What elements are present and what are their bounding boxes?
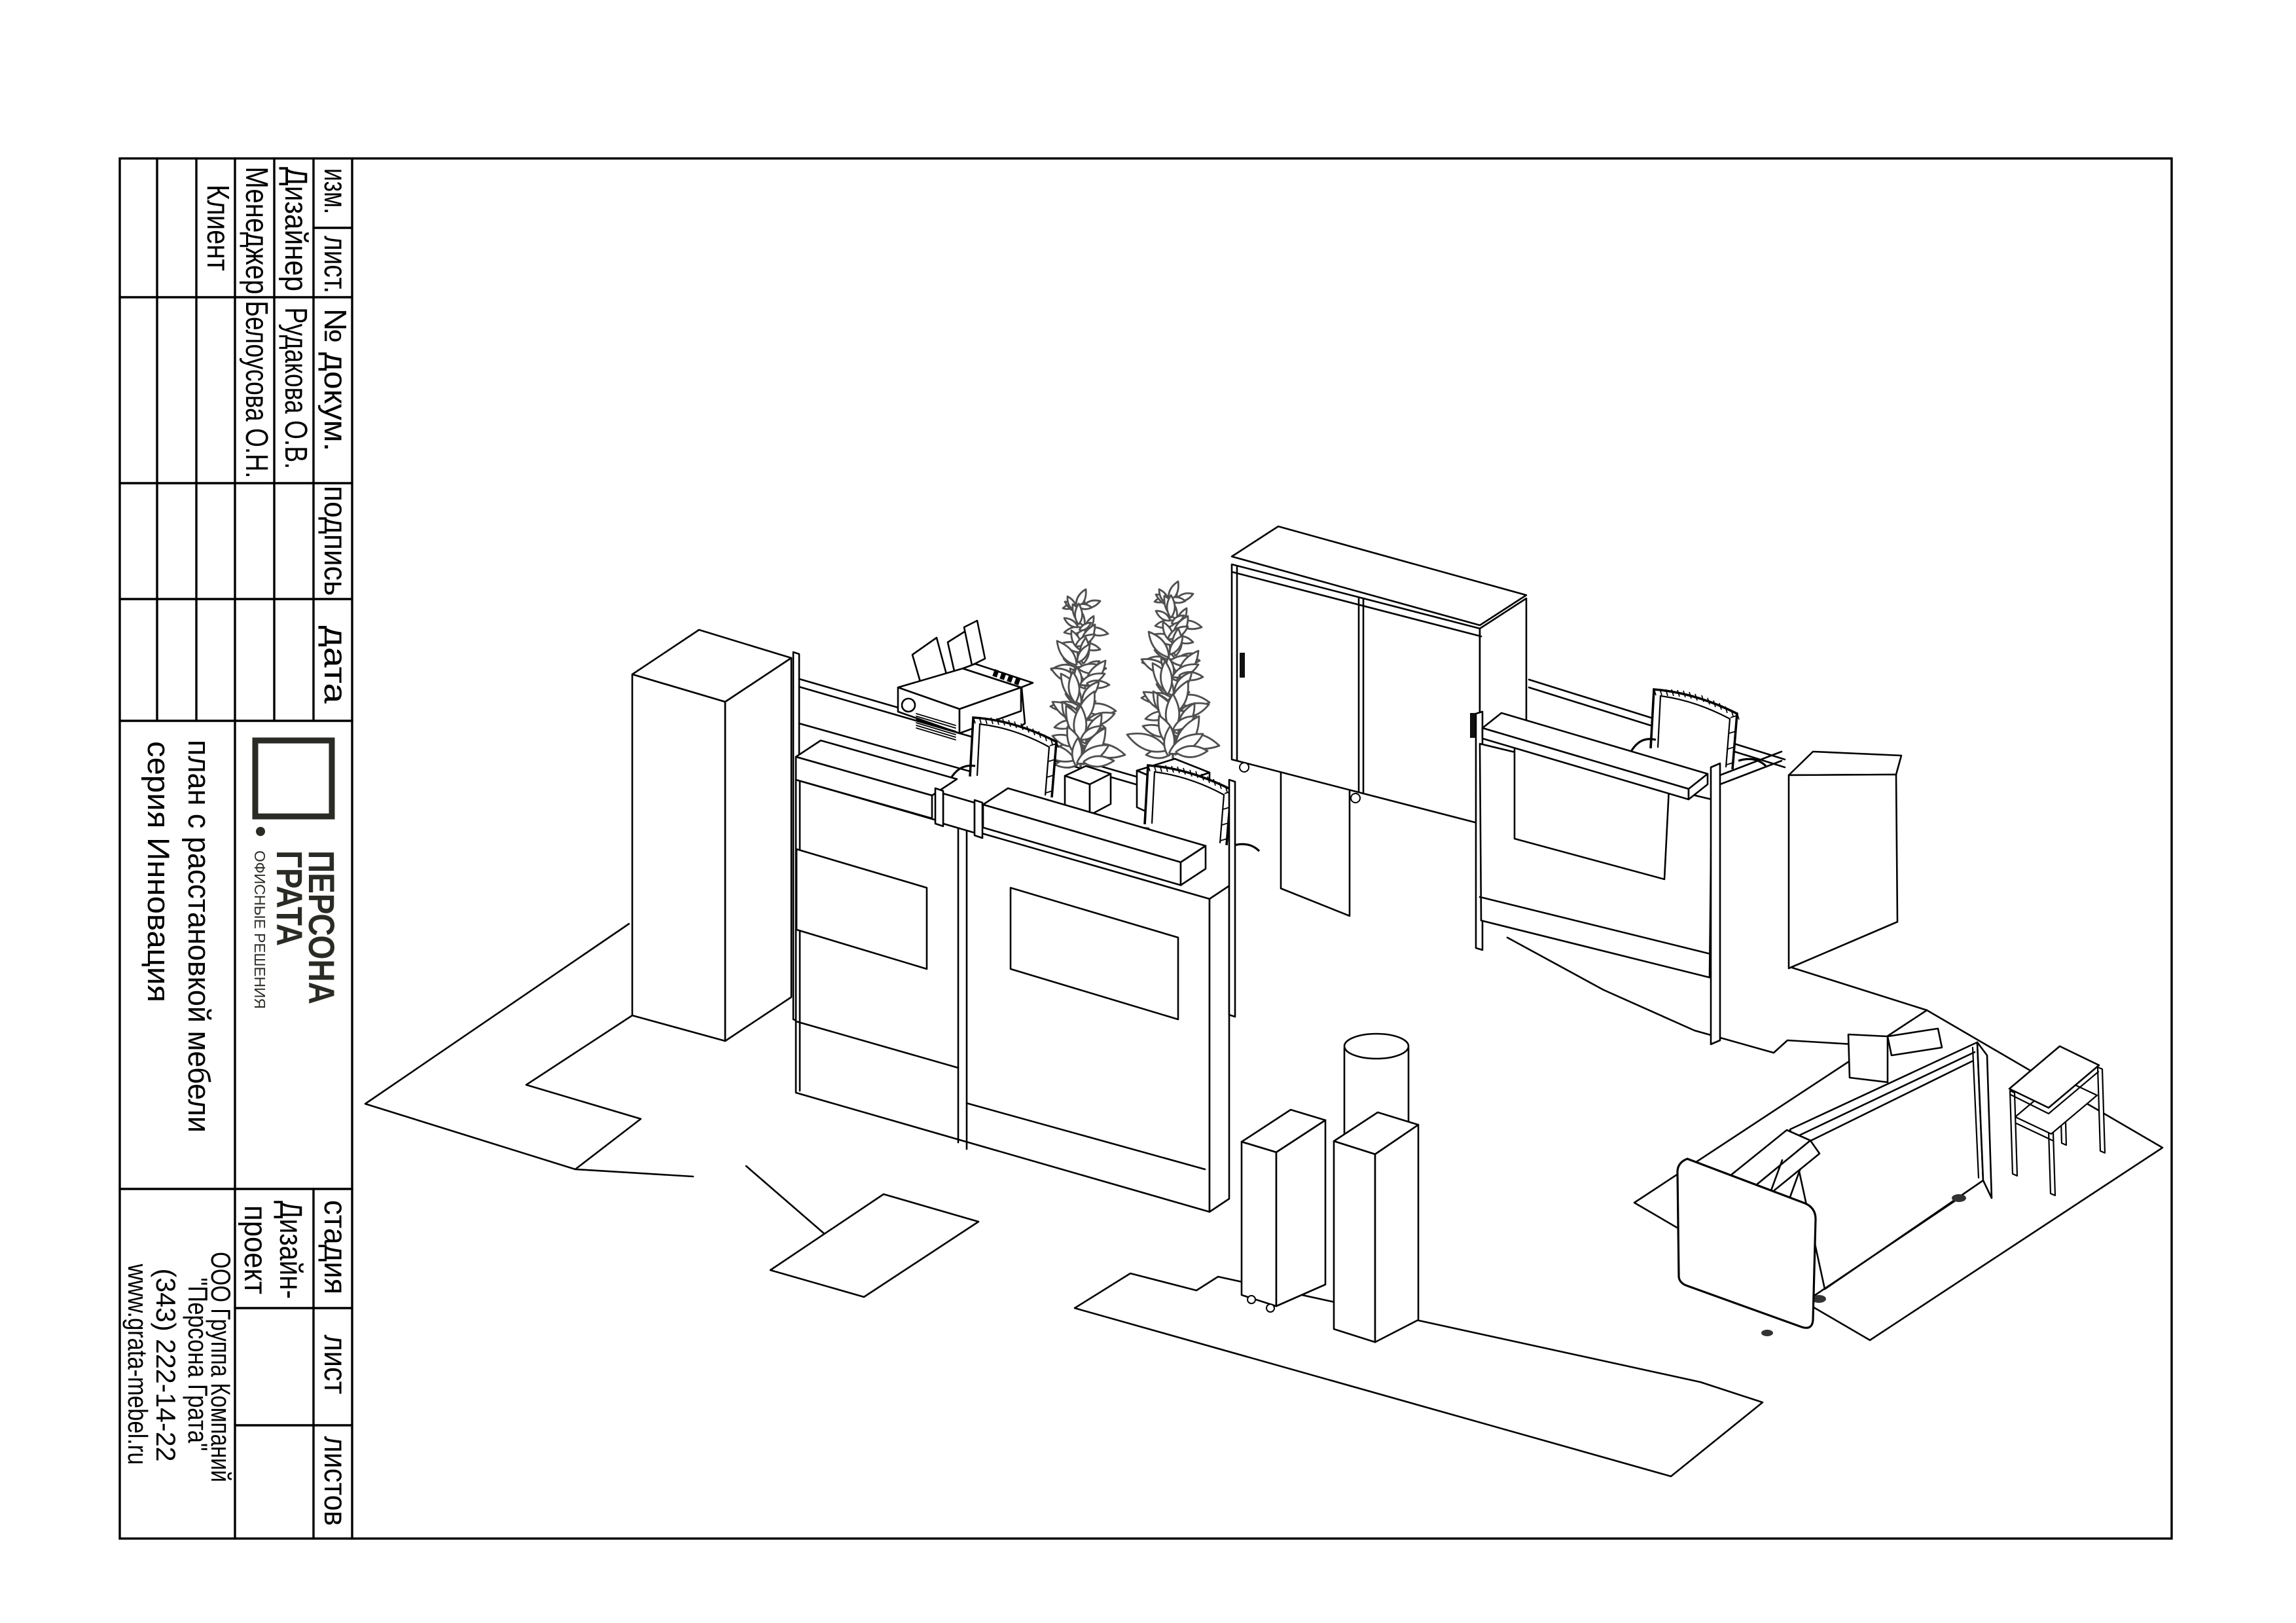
svg-text:Менеджер: Менеджер	[239, 167, 274, 295]
svg-text:изм.: изм.	[317, 168, 352, 214]
svg-text:проект: проект	[238, 1205, 272, 1294]
svg-text:Дизайнер: Дизайнер	[278, 167, 313, 291]
svg-text:подпись: подпись	[317, 486, 352, 596]
svg-text:"Персона Грата": "Персона Грата"	[183, 1278, 213, 1451]
svg-text:Клиент: Клиент	[200, 185, 235, 271]
svg-text:(343) 222-14-22: (343) 222-14-22	[151, 1269, 181, 1462]
svg-text:дата: дата	[317, 626, 352, 704]
svg-text:стадия: стадия	[317, 1200, 352, 1294]
svg-text:Белоусова О.Н.: Белоусова О.Н.	[239, 301, 274, 479]
svg-text:листов: листов	[317, 1436, 352, 1526]
svg-text:Рудакова О.В.: Рудакова О.В.	[278, 308, 313, 469]
svg-text:№ докум.: № докум.	[317, 308, 352, 452]
svg-text:ГРАТА: ГРАТА	[269, 850, 310, 946]
svg-text:лист.: лист.	[317, 236, 352, 293]
svg-text:лист: лист	[317, 1335, 352, 1395]
svg-text:серия Инновация: серия Инновация	[141, 741, 176, 1002]
svg-text:Дизайн-: Дизайн-	[273, 1201, 308, 1299]
svg-text:ОФИСНЫЕ РЕШЕНИЯ: ОФИСНЫЕ РЕШЕНИЯ	[251, 850, 268, 1009]
svg-text:www.grata-mebel.ru: www.grata-mebel.ru	[122, 1264, 153, 1465]
svg-text:план с расстановкой мебели: план с расстановкой мебели	[182, 740, 217, 1133]
